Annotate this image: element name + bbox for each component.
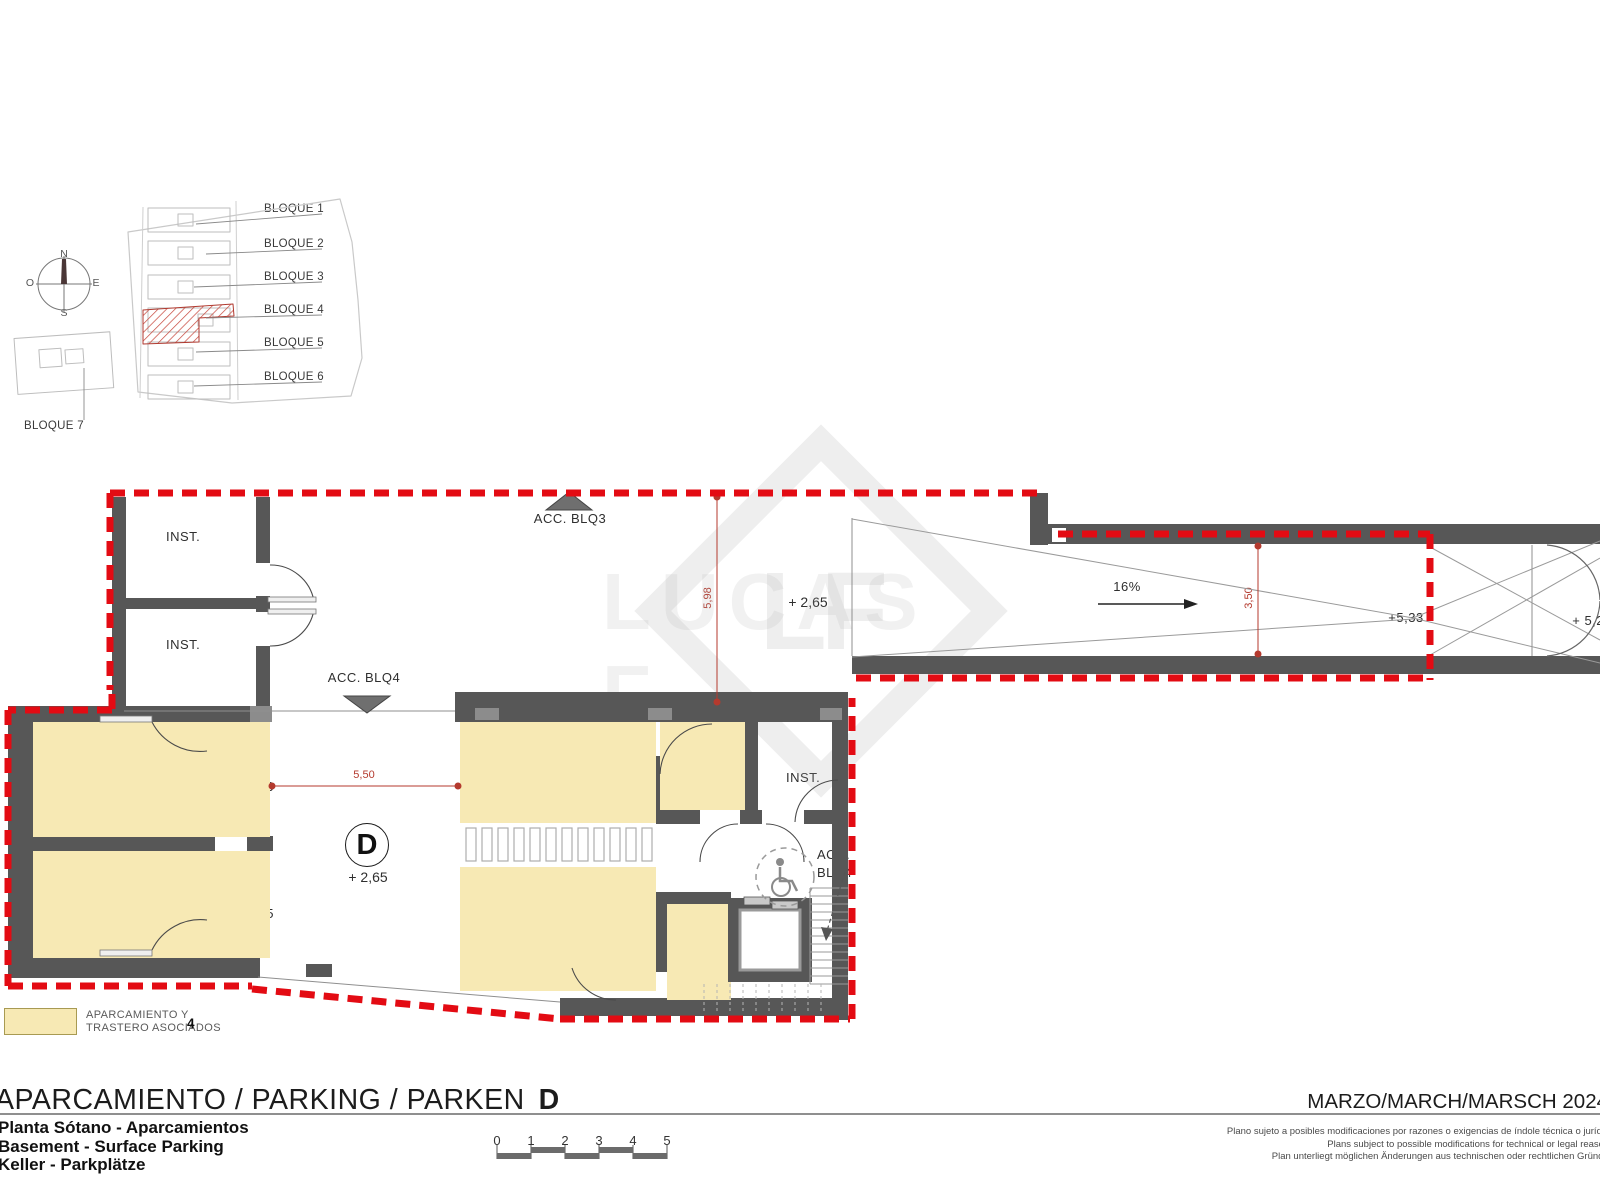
- gate-arcs: [1547, 545, 1600, 656]
- scale-label-1: 1: [527, 1133, 534, 1148]
- legend-parking-swatch: [4, 1008, 77, 1035]
- site-map-highlight-bloque4: [143, 304, 234, 344]
- sheet-title-letter: D: [539, 1084, 560, 1116]
- legend-count: 4: [187, 1016, 195, 1031]
- sheet-subtitles: Planta Sótano - Aparcamientos Basement -…: [0, 1119, 249, 1175]
- pedestrian-crosswalk: [460, 823, 656, 867]
- wheelchair-icon: [756, 848, 814, 906]
- site-map: [14, 199, 362, 420]
- legend-line-2: TRASTERO ASOCIADOS: [86, 1022, 221, 1035]
- disclaimer-es: Plano sujeto a posibles modificaciones p…: [1227, 1126, 1600, 1139]
- compass-icon: [36, 256, 92, 312]
- scale-bar: [497, 1145, 667, 1159]
- sheet-date: MARZO/MARCH/MARSCH 2024: [1307, 1090, 1600, 1114]
- site-map-bloque7-outline: [14, 332, 114, 395]
- disclaimer-de: Plan unterliegt möglichen Änderungen aus…: [1227, 1151, 1600, 1164]
- zone-letter-badge: D: [345, 823, 389, 867]
- title-divider-line: [0, 1113, 1600, 1115]
- disclaimer-en: Plans subject to possible modifications …: [1227, 1139, 1600, 1152]
- legend-text: APARCAMIENTO Y TRASTERO ASOCIADOS: [86, 1009, 221, 1035]
- scale-label-0: 0: [493, 1133, 500, 1148]
- elevator: [728, 897, 812, 982]
- floor-plan-sheet: { "site_plan": { "compass": {"n": "N", "…: [0, 0, 1600, 1200]
- scale-label-2: 2: [561, 1133, 568, 1148]
- disclaimer-block: Plano sujeto a posibles modificaciones p…: [1227, 1126, 1600, 1164]
- acc-blq4-arrow: [344, 696, 390, 713]
- floor-plan-geometry: [0, 0, 1600, 1200]
- sheet-title-text: APARCAMIENTO / PARKING / PARKEN: [0, 1084, 525, 1116]
- slope-arrow: [1098, 599, 1198, 609]
- subtitle-es: Planta Sótano - Aparcamientos: [0, 1119, 249, 1138]
- scale-label-4: 4: [629, 1133, 636, 1148]
- scale-label-5: 5: [663, 1133, 670, 1148]
- scale-label-3: 3: [595, 1133, 602, 1148]
- subtitle-en: Basement - Surface Parking: [0, 1138, 249, 1157]
- subtitle-de: Keller - Parkplätze: [0, 1156, 249, 1175]
- legend-line-1: APARCAMIENTO Y: [86, 1009, 221, 1022]
